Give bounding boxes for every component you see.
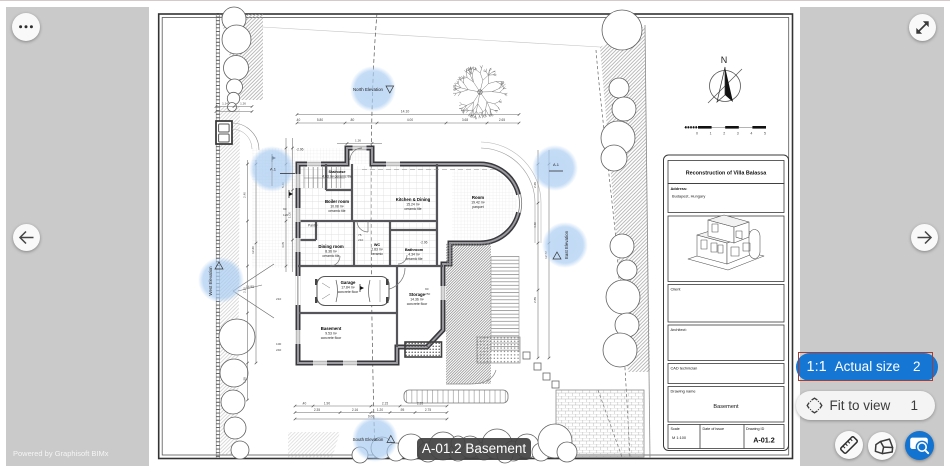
svg-text:4.63 m² ceramic tile: 4.63 m² ceramic tile bbox=[322, 175, 352, 179]
svg-text:West Elevation: West Elevation bbox=[208, 266, 213, 296]
svg-text:Address:: Address: bbox=[671, 186, 688, 191]
svg-text:1.14: 1.14 bbox=[222, 102, 228, 106]
svg-text:2.83 m²: 2.83 m² bbox=[371, 248, 383, 252]
svg-text:15.24 m²: 15.24 m² bbox=[406, 203, 420, 207]
svg-text:Pantry: Pantry bbox=[308, 224, 318, 228]
svg-text:-2.96: -2.96 bbox=[296, 148, 304, 152]
svg-text:240: 240 bbox=[276, 348, 281, 352]
svg-text:17.84 m²: 17.84 m² bbox=[341, 286, 355, 290]
svg-text:12.30: 12.30 bbox=[251, 246, 255, 254]
svg-text:4.34 m²: 4.34 m² bbox=[408, 253, 420, 257]
svg-text:210: 210 bbox=[358, 238, 363, 242]
svg-text:parquet: parquet bbox=[472, 205, 484, 209]
svg-text:Drawing ID: Drawing ID bbox=[746, 427, 765, 431]
svg-text:concrete floor: concrete floor bbox=[338, 290, 359, 294]
svg-text:14.36 m²: 14.36 m² bbox=[410, 298, 424, 302]
svg-text:concrete floor: concrete floor bbox=[321, 336, 342, 340]
svg-text:4: 4 bbox=[750, 132, 752, 136]
svg-text:2.35: 2.35 bbox=[314, 408, 320, 412]
svg-text:ceramic tile: ceramic tile bbox=[405, 257, 422, 261]
svg-text:Budapest, Hungary: Budapest, Hungary bbox=[672, 194, 705, 199]
svg-text:Room: Room bbox=[472, 195, 484, 200]
svg-text:A-01.2: A-01.2 bbox=[753, 436, 775, 445]
svg-text:2.16: 2.16 bbox=[352, 408, 358, 412]
svg-text:A.1: A.1 bbox=[270, 167, 277, 172]
svg-text:1.26: 1.26 bbox=[240, 102, 246, 106]
svg-text:East Elevation: East Elevation bbox=[564, 230, 569, 259]
svg-text:3: 3 bbox=[737, 132, 739, 136]
svg-text:Staircase: Staircase bbox=[329, 170, 346, 174]
svg-text:5.80: 5.80 bbox=[317, 118, 323, 122]
svg-text:0: 0 bbox=[696, 132, 698, 136]
svg-text:9.53 m²: 9.53 m² bbox=[325, 332, 337, 336]
svg-text:M 1:100: M 1:100 bbox=[672, 435, 687, 440]
svg-text:5: 5 bbox=[764, 132, 766, 136]
svg-text:2.65: 2.65 bbox=[499, 118, 505, 122]
svg-text:2.40: 2.40 bbox=[243, 192, 247, 198]
svg-text:Boiler room: Boiler room bbox=[325, 199, 349, 204]
svg-text:Kitchen & Dining: Kitchen & Dining bbox=[396, 197, 431, 202]
svg-text:.95: .95 bbox=[400, 408, 405, 412]
svg-text:Architect:: Architect: bbox=[671, 327, 687, 332]
svg-text:N: N bbox=[721, 55, 728, 65]
svg-text:90: 90 bbox=[425, 287, 429, 291]
svg-text:75: 75 bbox=[358, 233, 362, 237]
svg-text:-2.96: -2.96 bbox=[420, 241, 428, 245]
svg-text:ceramic tile: ceramic tile bbox=[404, 207, 421, 211]
svg-text:100: 100 bbox=[276, 342, 281, 346]
svg-text:CAD technician: CAD technician bbox=[671, 366, 698, 371]
svg-text:ceramic tile: ceramic tile bbox=[328, 209, 345, 213]
svg-text:2.75: 2.75 bbox=[425, 408, 431, 412]
svg-text:3.68: 3.68 bbox=[462, 118, 468, 122]
svg-text:Dining room: Dining room bbox=[318, 244, 343, 249]
svg-text:Storage: Storage bbox=[409, 292, 426, 297]
svg-text:1.20: 1.20 bbox=[377, 408, 383, 412]
svg-text:2.35: 2.35 bbox=[417, 401, 423, 405]
svg-text:2.10: 2.10 bbox=[243, 287, 247, 293]
svg-text:4.00: 4.00 bbox=[407, 118, 413, 122]
svg-text:8.36 m²: 8.36 m² bbox=[325, 250, 337, 254]
svg-text:4.30: 4.30 bbox=[533, 222, 537, 228]
svg-text:WC: WC bbox=[374, 243, 381, 247]
svg-text:A.1: A.1 bbox=[553, 162, 560, 167]
svg-text:.80: .80 bbox=[350, 118, 355, 122]
svg-text:1.90: 1.90 bbox=[324, 401, 330, 405]
svg-text:Garage: Garage bbox=[341, 280, 356, 285]
svg-text:North Elevation: North Elevation bbox=[353, 87, 384, 92]
svg-text:1.55: 1.55 bbox=[243, 377, 247, 383]
svg-text:4.05: 4.05 bbox=[281, 242, 285, 248]
svg-text:250: 250 bbox=[425, 292, 430, 296]
svg-text:1: 1 bbox=[710, 132, 712, 136]
svg-text:2.15: 2.15 bbox=[382, 401, 388, 405]
svg-text:ceramic: ceramic bbox=[371, 252, 383, 256]
svg-text:Reconstruction of Villa Balass: Reconstruction of Villa Balassa bbox=[686, 171, 767, 177]
svg-text:Basement: Basement bbox=[713, 404, 739, 410]
svg-text:.40: .40 bbox=[302, 401, 307, 405]
svg-text:Date of issue: Date of issue bbox=[703, 427, 725, 431]
svg-text:Bathroom: Bathroom bbox=[405, 247, 424, 252]
svg-text:ceramic tile: ceramic tile bbox=[322, 254, 339, 258]
svg-text:Scale: Scale bbox=[671, 427, 680, 431]
svg-text:2.85: 2.85 bbox=[533, 297, 537, 303]
svg-text:2.65: 2.65 bbox=[533, 182, 537, 188]
svg-text:.40: .40 bbox=[296, 118, 301, 122]
svg-text:2: 2 bbox=[723, 132, 725, 136]
svg-text:19.42 m²: 19.42 m² bbox=[471, 201, 485, 205]
svg-text:90: 90 bbox=[283, 207, 287, 211]
svg-text:Client: Client bbox=[671, 287, 682, 292]
svg-text:concrete floor: concrete floor bbox=[407, 302, 428, 306]
svg-text:Basement: Basement bbox=[321, 326, 342, 331]
svg-text:South Elevation: South Elevation bbox=[353, 437, 384, 442]
svg-text:210: 210 bbox=[276, 297, 281, 301]
svg-text:1.00: 1.00 bbox=[288, 212, 292, 218]
svg-text:1.26: 1.26 bbox=[355, 139, 361, 143]
svg-text:14.10: 14.10 bbox=[401, 110, 410, 114]
svg-text:Drawing name: Drawing name bbox=[671, 389, 696, 394]
svg-text:10.08 m²: 10.08 m² bbox=[330, 205, 344, 209]
